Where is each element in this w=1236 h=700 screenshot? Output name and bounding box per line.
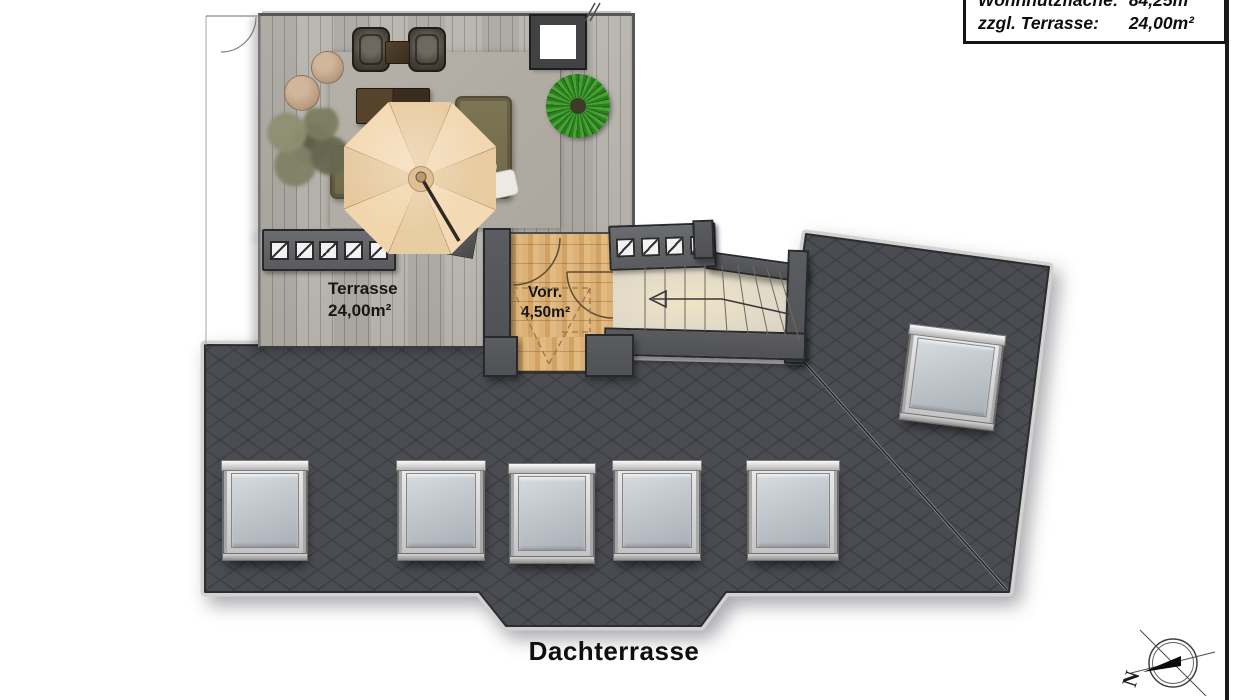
info-row: zzgl. Terrasse: 24,00m² bbox=[978, 12, 1194, 35]
info-box: Wohnnutzfläche: 84,25m² zzgl. Terrasse: … bbox=[963, 0, 1227, 44]
sheet-border bbox=[1225, 0, 1229, 700]
side-table bbox=[385, 41, 410, 64]
vestibule-floor-extension bbox=[512, 337, 587, 374]
parasol-umbrella bbox=[344, 102, 496, 254]
roof-window-glass bbox=[622, 473, 692, 548]
wall-segment bbox=[483, 336, 518, 377]
olive-tree-plant bbox=[264, 108, 356, 190]
roof-window-glass bbox=[231, 473, 299, 548]
roof-window-glass bbox=[406, 473, 476, 548]
roof-window bbox=[397, 463, 485, 559]
railing-pane bbox=[616, 238, 636, 258]
pouf-table bbox=[311, 51, 344, 84]
info-label: Wohnnutzfläche: bbox=[978, 0, 1119, 12]
roof-window-glass bbox=[756, 473, 830, 548]
railing-pane bbox=[344, 241, 363, 260]
roof-window bbox=[747, 463, 839, 559]
info-value: 24,00m² bbox=[1129, 12, 1194, 35]
vestibule-area: 4,50m² bbox=[521, 303, 570, 323]
north-compass-icon: N bbox=[1117, 630, 1215, 696]
skylight bbox=[531, 16, 585, 68]
railing-pane bbox=[295, 241, 314, 260]
lounge-chair bbox=[408, 27, 446, 72]
roof-window bbox=[613, 463, 701, 559]
compass-needle bbox=[1143, 656, 1181, 672]
compass-north-label: N bbox=[1117, 668, 1145, 690]
railing-pane bbox=[665, 236, 685, 256]
wall-segment bbox=[604, 327, 807, 360]
info-row: Wohnnutzfläche: 84,25m² bbox=[978, 0, 1194, 12]
wall-segment bbox=[585, 334, 634, 377]
wall-segment bbox=[692, 220, 714, 260]
railing-pane bbox=[270, 241, 289, 260]
door-swing-arc bbox=[221, 17, 256, 52]
railing-pane bbox=[319, 241, 338, 260]
roof-window bbox=[509, 466, 595, 562]
pouf-table bbox=[284, 75, 320, 111]
railing-pane bbox=[640, 237, 660, 257]
info-label: zzgl. Terrasse: bbox=[978, 12, 1099, 35]
vestibule-label: Vorr. 4,50m² bbox=[521, 283, 570, 323]
roof-window-glass bbox=[518, 476, 586, 551]
plan-title: Dachterrasse bbox=[464, 636, 764, 667]
wall-segment bbox=[483, 228, 511, 344]
terrace-area: 24,00m² bbox=[328, 300, 398, 322]
terrace-label: Terrasse 24,00m² bbox=[328, 278, 398, 322]
info-value: 84,25m² bbox=[1129, 0, 1194, 12]
roof-window-glass bbox=[909, 338, 995, 418]
roof-window-rotated bbox=[899, 326, 1005, 429]
roof-window bbox=[222, 463, 308, 559]
vestibule-name: Vorr. bbox=[528, 283, 570, 303]
palm-plant bbox=[546, 74, 610, 138]
terrace-name: Terrasse bbox=[328, 278, 398, 300]
